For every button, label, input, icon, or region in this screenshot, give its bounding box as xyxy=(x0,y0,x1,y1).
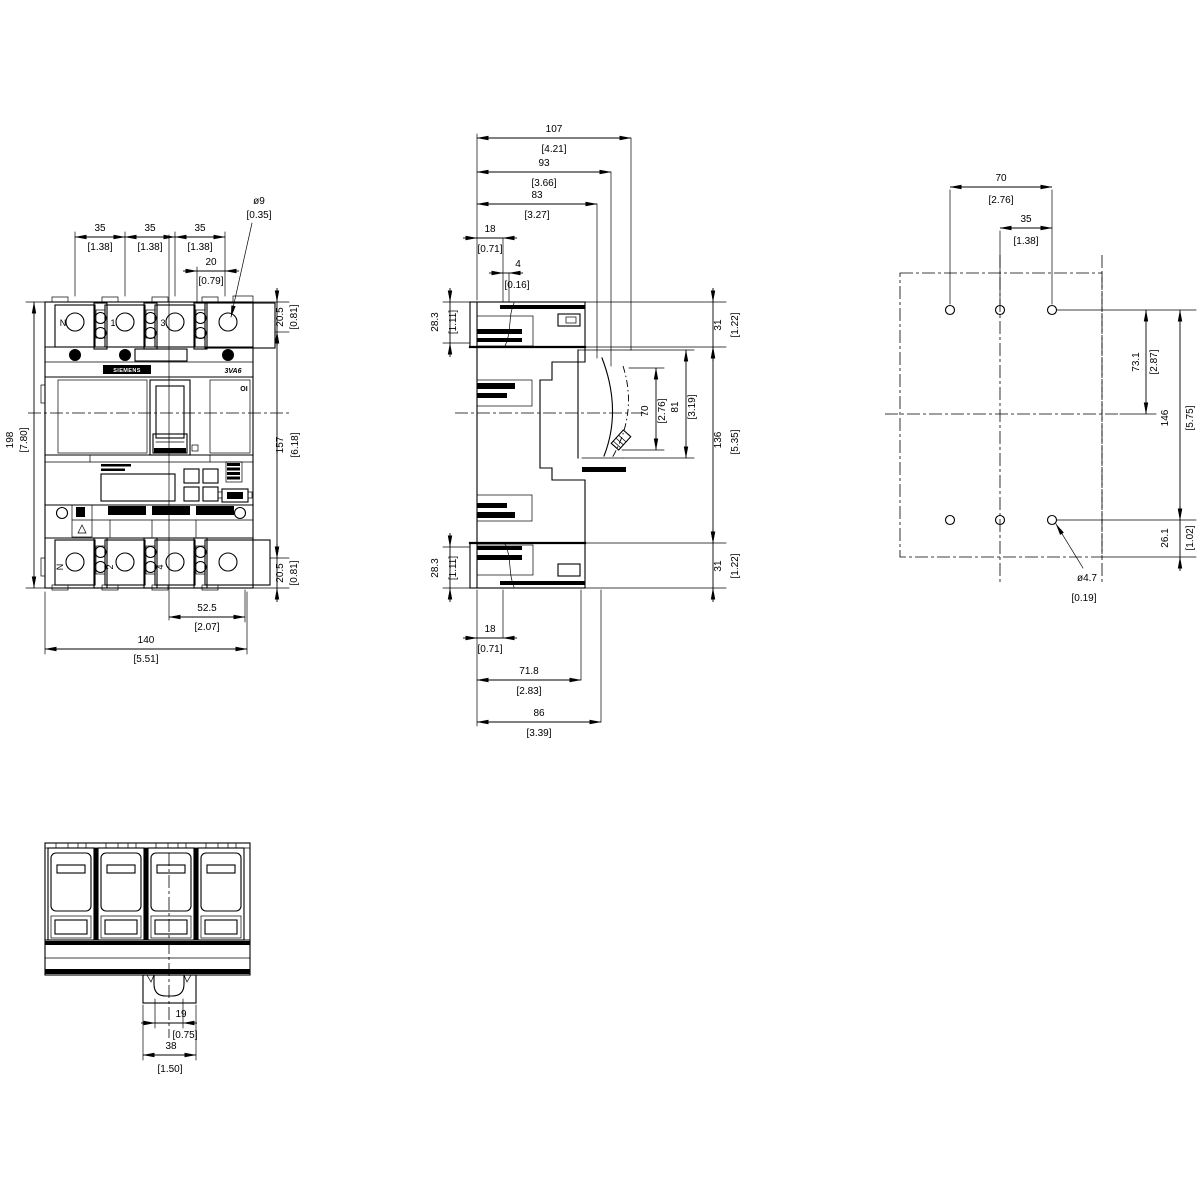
din-rail-clip xyxy=(143,975,196,1003)
dim-depth-83-mm: 83 xyxy=(531,190,543,201)
side-view: 107 [4.21] 93 [3.66] 83 [3.27] 18 [0.71]… xyxy=(430,124,741,739)
etu-button xyxy=(184,487,199,501)
dim-clip-slot-mm: 19 xyxy=(175,1009,187,1020)
dim-depth-83-inch: [3.27] xyxy=(524,210,549,221)
dim-side-bottom: 18 [0.71] 71.8 [2.83] 86 [3.39] xyxy=(463,590,601,739)
pole-label-n-bottom: N xyxy=(55,564,65,571)
dim-top-4-mm: 4 xyxy=(515,259,521,270)
dim-side-handle-70: 70 [2.76] xyxy=(622,368,668,450)
dim-total-width-inch: [5.51] xyxy=(133,654,158,665)
dim-bottom-71-8-inch: [2.83] xyxy=(516,686,541,697)
dim-bottom-28-3-mm: 28.3 xyxy=(430,558,441,578)
dim-pitch2-inch: [1.38] xyxy=(137,242,162,253)
breaker-body-outline xyxy=(45,302,253,588)
dim-drill-right-chain: 73.1 [2.87] 146 [5.75] 26.1 [1.02] xyxy=(1057,310,1196,571)
dim-top-28-3-inch: [1.11] xyxy=(448,310,459,334)
dim-side-right-chain: 31 [1.22] 136 [5.35] 31 [1.22] xyxy=(585,288,741,602)
dim-bottom-margin-mm: 20.5 xyxy=(275,563,286,583)
terminal-hole-4th-pole-bottom xyxy=(219,553,237,571)
side-front-cover xyxy=(578,350,631,458)
rating-label-strip xyxy=(196,506,234,515)
dim-center-to-right-inch: [2.07] xyxy=(194,622,219,633)
toggle-section: OI xyxy=(58,380,250,455)
etu-display xyxy=(101,474,175,501)
terminal-hole-n-top xyxy=(66,313,84,331)
etu-button xyxy=(203,469,218,483)
bottom-base xyxy=(45,940,250,974)
on-off-marking: OI xyxy=(240,386,247,393)
handle-travel-arc xyxy=(612,366,628,458)
dim-drill-dia-inch: [0.19] xyxy=(1071,593,1096,604)
dim-hole-dia-mm: ø9 xyxy=(253,196,265,207)
dim-side-left-28-3-top: 28.3 [1.11] xyxy=(430,288,470,357)
dim-pitch3-inch: [1.38] xyxy=(187,242,212,253)
dim-total-width-mm: 140 xyxy=(138,635,155,646)
dim-inner-height-mm: 157 xyxy=(275,436,286,453)
dim-depth-107-mm: 107 xyxy=(546,124,563,135)
mounting-hole xyxy=(1048,306,1057,315)
dim-drill-h35: 35 [1.38] xyxy=(1000,214,1052,304)
dim-top-31-mm: 31 xyxy=(713,319,724,331)
dim-hole-dia-inch: [0.35] xyxy=(246,210,271,221)
dim-drill-73-1-inch: [2.87] xyxy=(1149,349,1160,374)
dim-handle-81-mm: 81 xyxy=(670,401,681,413)
pole-label-4: 4 xyxy=(155,564,165,569)
dim-top-31-inch: [1.22] xyxy=(730,312,741,337)
dim-pitch2-mm: 35 xyxy=(144,223,156,234)
dim-top-margin-mm: 20.5 xyxy=(275,307,286,327)
mounting-hole xyxy=(946,516,955,525)
dim-hole-offset-mm: 20 xyxy=(205,257,217,268)
brand-band: SIEMENS 3VA6 xyxy=(45,365,253,377)
dim-bottom-86-inch: [3.39] xyxy=(526,728,551,739)
brand-text: SIEMENS xyxy=(113,368,141,374)
rating-label-strip xyxy=(152,506,190,515)
dim-drill-26-1-mm: 26.1 xyxy=(1160,528,1171,548)
dim-drill-146-inch: [5.75] xyxy=(1185,405,1196,430)
dim-clip-width-inch: [1.50] xyxy=(157,1064,182,1075)
dim-clip-width-mm: 38 xyxy=(165,1041,177,1052)
trip-unit xyxy=(45,462,253,538)
rating-label-strip xyxy=(108,506,146,515)
side-top-terminal xyxy=(470,302,585,347)
dim-mid-136-mm: 136 xyxy=(713,431,724,448)
dim-drill-73-1-mm: 73.1 xyxy=(1131,352,1142,372)
dim-bottom-18-mm: 18 xyxy=(484,624,496,635)
terminal-hole-1 xyxy=(116,313,134,331)
dim-front-hole-offset: 20 [0.79] xyxy=(183,257,239,303)
dimension-drawing-page: N 1 3 SIEMENS 3VA6 OI xyxy=(0,0,1200,1200)
front-view: N 1 3 SIEMENS 3VA6 OI xyxy=(5,196,301,665)
dim-center-to-right-mm: 52.5 xyxy=(197,603,217,614)
pole-label-1: 1 xyxy=(110,318,115,328)
dim-handle-70-mm: 70 xyxy=(640,405,651,417)
dim-pitch1-mm: 35 xyxy=(94,223,106,234)
cover-screw xyxy=(235,508,246,519)
bottom-view: 19 [0.75] 38 [1.50] xyxy=(45,843,250,1075)
dim-drill-hole-dia: ø4.7 [0.19] xyxy=(1056,524,1097,604)
dim-hole-offset-inch: [0.79] xyxy=(198,276,223,287)
dim-pitch3-mm: 35 xyxy=(194,223,206,234)
bottom-terminal-row: N 2 4 xyxy=(52,538,237,590)
dim-top-margin-inch: [0.81] xyxy=(289,304,300,329)
dim-drill-26-1-inch: [1.02] xyxy=(1185,525,1196,550)
side-bottom-terminal xyxy=(470,543,585,588)
dim-drill-146-mm: 146 xyxy=(1160,409,1171,426)
right-terminal-block-top xyxy=(205,303,275,348)
dim-bottom-71-8-mm: 71.8 xyxy=(519,666,539,677)
terminal-hole-2 xyxy=(116,553,134,571)
dim-bottom-31-inch: [1.22] xyxy=(730,553,741,578)
dim-front-right-chain: 20.5 [0.81] 157 [6.18] 20.5 [0.81] xyxy=(253,288,301,602)
dimension-drawing-canvas: N 1 3 SIEMENS 3VA6 OI xyxy=(0,0,1200,1200)
terminal-hole-4th-pole-top xyxy=(219,313,237,331)
mounting-outline xyxy=(900,273,1102,557)
side-mid-profile xyxy=(477,347,626,543)
terminal-hole-n-bottom xyxy=(66,553,84,571)
cover-screw-row xyxy=(45,349,253,362)
dim-depth-93-mm: 93 xyxy=(538,158,550,169)
dim-drill-h70-inch: [2.76] xyxy=(988,195,1013,206)
drilling-plan-view: 70 [2.76] 35 [1.38] 73.1 [2.87] 146 [5.7… xyxy=(885,173,1196,604)
dim-top-4-inch: [0.16] xyxy=(504,280,529,291)
mounting-hole xyxy=(946,306,955,315)
mounting-hole xyxy=(1048,516,1057,525)
pole-label-3: 3 xyxy=(160,318,165,328)
dim-side-top-4: 4 [0.16] xyxy=(489,259,530,302)
dim-drill-h35-mm: 35 xyxy=(1020,214,1032,225)
dim-front-center-to-right: 52.5 [2.07] xyxy=(169,590,245,633)
dim-total-height-mm: 198 xyxy=(5,431,16,448)
dim-total-height-inch: [7.80] xyxy=(19,427,30,452)
model-text: 3VA6 xyxy=(225,368,242,375)
pole-label-2: 2 xyxy=(105,564,115,569)
dim-clip-slot-inch: [0.75] xyxy=(172,1030,197,1041)
dim-pitch1-inch: [1.38] xyxy=(87,242,112,253)
cover-screw xyxy=(57,508,68,519)
dim-bottom-86-mm: 86 xyxy=(533,708,545,719)
dim-drill-h70-mm: 70 xyxy=(995,173,1007,184)
warning-triangle-icon xyxy=(78,525,86,533)
etu-button xyxy=(203,487,218,501)
dim-mid-136-inch: [5.35] xyxy=(730,429,741,454)
dim-front-total-height: 198 [7.80] xyxy=(5,302,45,588)
dim-drill-h35-inch: [1.38] xyxy=(1013,236,1038,247)
dim-depth-107-inch: [4.21] xyxy=(541,144,566,155)
dim-depth-93-inch: [3.66] xyxy=(531,178,556,189)
dim-top-18-inch: [0.71] xyxy=(477,244,502,255)
dim-top-18-mm: 18 xyxy=(484,224,496,235)
dim-front-hole-dia: ø9 [0.35] xyxy=(231,196,272,317)
dim-side-left-28-3-bottom: 28.3 [1.11] xyxy=(430,533,470,602)
pole-label-n-top: N xyxy=(60,318,67,328)
dim-drill-dia-mm: ø4.7 xyxy=(1077,573,1097,584)
dim-handle-81-inch: [3.19] xyxy=(687,394,698,419)
dim-bottom-18-inch: [0.71] xyxy=(477,644,502,655)
dim-bottom-31-mm: 31 xyxy=(713,560,724,572)
toggle-handle xyxy=(156,386,184,438)
etu-button xyxy=(184,469,199,483)
dim-handle-70-inch: [2.76] xyxy=(657,398,668,423)
dim-top-28-3-mm: 28.3 xyxy=(430,312,441,332)
bottom-modules xyxy=(48,843,244,940)
dim-bottom-28-3-inch: [1.11] xyxy=(448,556,459,580)
top-terminal-row: N 1 3 xyxy=(52,297,237,349)
dim-inner-height-inch: [6.18] xyxy=(290,432,301,457)
dim-bottom-margin-inch: [0.81] xyxy=(289,560,300,585)
